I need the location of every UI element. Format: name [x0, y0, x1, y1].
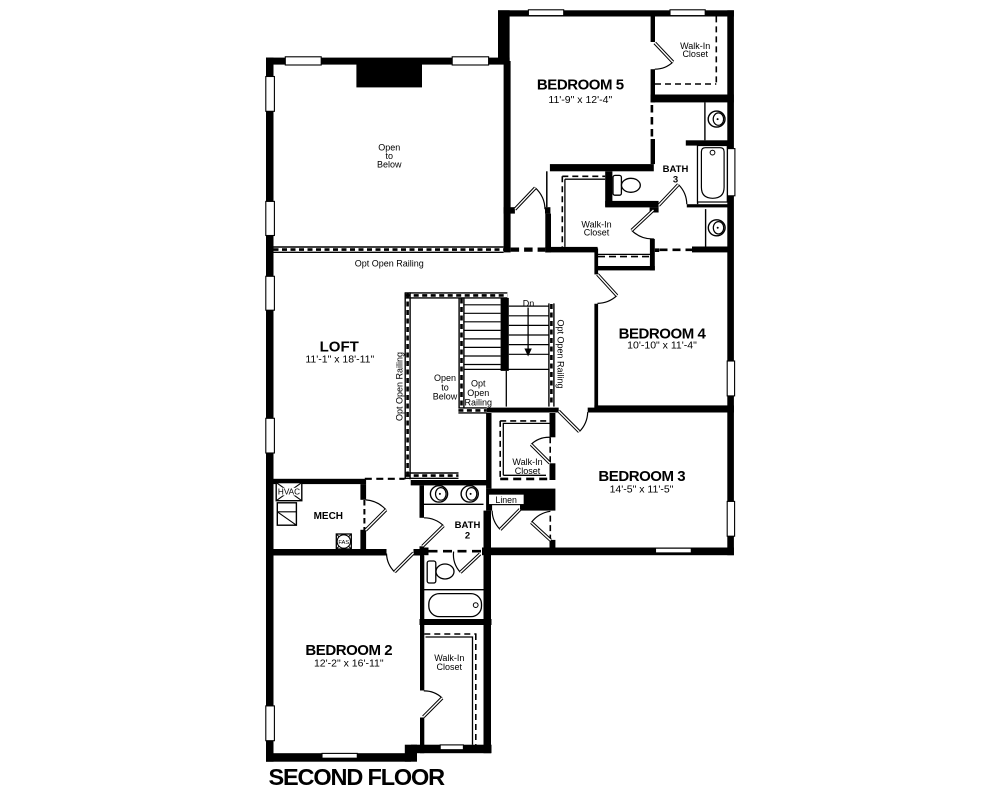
svg-text:Open: Open — [467, 388, 489, 398]
svg-text:BATH: BATH — [455, 520, 481, 531]
svg-text:Closet: Closet — [682, 49, 708, 59]
svg-text:FAS: FAS — [338, 540, 349, 546]
svg-text:2: 2 — [465, 530, 470, 541]
svg-text:Opt: Opt — [471, 378, 486, 388]
svg-text:Closet: Closet — [584, 227, 610, 237]
svg-text:Opt Open Railing: Opt Open Railing — [355, 259, 424, 269]
svg-text:Closet: Closet — [437, 662, 463, 672]
svg-text:BATH: BATH — [663, 164, 689, 175]
svg-text:HVAC: HVAC — [278, 488, 300, 497]
svg-text:MECH: MECH — [314, 511, 343, 522]
svg-text:Below: Below — [377, 159, 402, 169]
svg-text:3: 3 — [673, 175, 678, 186]
svg-text:Opt Open Railing: Opt Open Railing — [556, 319, 566, 388]
svg-text:11'-1" x 18'-11": 11'-1" x 18'-11" — [305, 353, 374, 365]
svg-text:10'-10" x 11'-4": 10'-10" x 11'-4" — [627, 340, 697, 352]
svg-text:Dn: Dn — [523, 298, 535, 308]
svg-text:SECOND FLOOR: SECOND FLOOR — [269, 764, 446, 790]
svg-text:Below: Below — [433, 392, 458, 402]
svg-text:Closet: Closet — [515, 466, 541, 476]
svg-text:14'-5" x 11'-5": 14'-5" x 11'-5" — [610, 483, 674, 495]
svg-text:11'-9" x 12'-4": 11'-9" x 12'-4" — [548, 94, 612, 106]
svg-text:Linen: Linen — [495, 495, 517, 505]
svg-text:BEDROOM 5: BEDROOM 5 — [537, 77, 624, 94]
svg-text:Railing: Railing — [465, 398, 493, 408]
svg-text:Opt Open Railing: Opt Open Railing — [395, 352, 405, 421]
svg-text:12'-2" x 16'-11": 12'-2" x 16'-11" — [314, 657, 384, 669]
